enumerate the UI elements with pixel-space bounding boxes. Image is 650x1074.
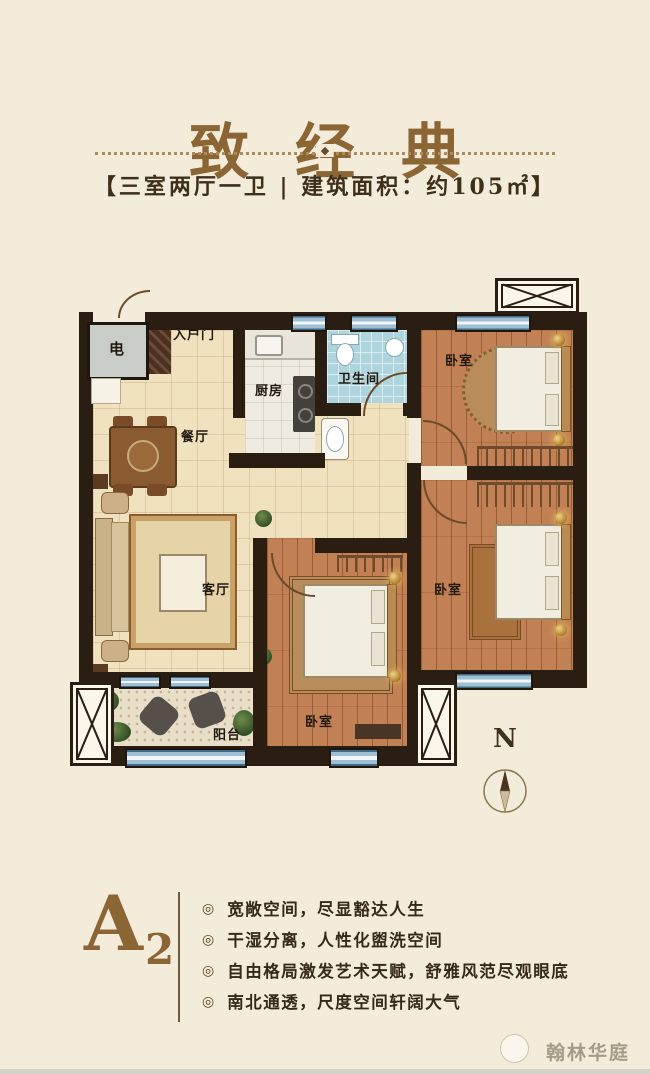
coffee-table xyxy=(159,554,207,612)
feature-list: ◎ 宽敞空间，尽显豁达人生 ◎ 干湿分离，人性化盥洗空间 ◎ 自由格局激发艺术天… xyxy=(202,897,569,1021)
feature-item: ◎ 南北通透，尺度空间轩阔大气 xyxy=(202,990,569,1012)
armchair xyxy=(101,640,129,662)
compass-icon xyxy=(479,762,531,820)
vertical-divider xyxy=(178,892,180,1022)
nightstand-lamp-icon xyxy=(389,572,401,584)
armchair xyxy=(101,492,129,514)
bullet-icon: ◎ xyxy=(202,962,214,979)
room-label-kitchen: 厨房 xyxy=(255,380,283,399)
pillow xyxy=(371,590,385,624)
air-shaft-icon xyxy=(415,682,457,766)
pillow xyxy=(545,352,559,384)
dining-chair xyxy=(147,484,167,496)
room-label-entry: 入户门 xyxy=(173,324,215,343)
bottom-border xyxy=(0,1069,650,1074)
nightstand-lamp-icon xyxy=(555,624,567,636)
bath-sink-icon xyxy=(385,338,404,357)
room-label-living: 客厅 xyxy=(202,579,230,598)
window xyxy=(455,672,533,690)
nightstand-lamp-icon xyxy=(553,434,565,446)
bullet-icon: ◎ xyxy=(202,900,214,917)
divider-ornament-icon: ◆ xyxy=(316,144,334,157)
balcony-slider-window xyxy=(169,675,211,689)
dresser xyxy=(355,724,401,739)
room-label-bedroom-bottom: 卧室 xyxy=(305,711,333,730)
wall xyxy=(315,403,361,416)
window xyxy=(125,748,247,768)
watermark-text: 翰林华庭 xyxy=(546,1038,630,1065)
room-label-dining: 餐厅 xyxy=(181,426,209,445)
feature-item: ◎ 干湿分离，人性化盥洗空间 xyxy=(202,928,569,950)
window xyxy=(455,314,531,332)
pillow xyxy=(371,632,385,666)
wardrobe xyxy=(337,555,403,572)
bed-headboard xyxy=(561,524,571,620)
wardrobe xyxy=(477,446,573,467)
nightstand-lamp-icon xyxy=(389,670,401,682)
plant-icon xyxy=(255,510,272,527)
wardrobe xyxy=(477,482,573,507)
feature-text: 宽敞空间，尽显豁达人生 xyxy=(227,896,425,920)
bed-headboard xyxy=(561,346,571,432)
watermark-logo-icon xyxy=(500,1034,529,1063)
wall xyxy=(407,330,421,418)
floor-plan: 电 入户门 厨房 卫生间 卧室 xyxy=(57,276,597,841)
toilet-icon xyxy=(336,343,354,366)
unit-label: A2 xyxy=(84,886,172,962)
unit-number: 2 xyxy=(145,925,174,974)
north-label: N xyxy=(483,724,527,754)
entry-door-arc xyxy=(118,290,150,318)
bed-headboard xyxy=(387,584,397,678)
side-table xyxy=(93,474,108,489)
room-label-bedroom-right: 卧室 xyxy=(434,579,462,598)
stove-burner xyxy=(298,408,313,423)
window xyxy=(291,314,327,332)
window xyxy=(329,748,379,768)
air-shaft-icon xyxy=(70,682,114,766)
balcony-slider-window xyxy=(119,675,161,689)
unit-letter: A xyxy=(84,879,143,968)
floorplan-poster: 致经典 ◆ 【三室两厅一卫 | 建筑面积：约105㎡】 xyxy=(0,0,650,1074)
sofa-seat xyxy=(111,522,129,632)
pillow xyxy=(545,394,559,426)
wall xyxy=(315,538,409,553)
room-label-bedroom-top: 卧室 xyxy=(445,350,473,369)
vanity-basin-icon xyxy=(326,426,344,452)
feature-item: ◎ 宽敞空间，尽显豁达人生 xyxy=(202,897,569,919)
window xyxy=(350,314,398,332)
bullet-icon: ◎ xyxy=(202,931,214,948)
shoe-cabinet xyxy=(91,378,121,404)
feature-text: 自由格局激发艺术天赋，舒雅风范尽观眼底 xyxy=(227,958,569,982)
air-shaft-icon xyxy=(495,278,579,314)
pillow xyxy=(545,532,559,566)
wall xyxy=(233,330,245,418)
room-label-electric: 电 xyxy=(109,338,125,359)
subtitle: 【三室两厅一卫 | 建筑面积：约105㎡】 xyxy=(0,169,650,201)
room-label-bathroom: 卫生间 xyxy=(338,368,380,387)
wall xyxy=(573,312,587,688)
dining-table-decor xyxy=(127,440,159,472)
pillow xyxy=(545,576,559,610)
stove-burner xyxy=(298,384,313,399)
nightstand-lamp-icon xyxy=(553,334,565,346)
kitchen-sink-icon xyxy=(255,335,283,356)
feature-item: ◎ 自由格局激发艺术天赋，舒雅风范尽观眼底 xyxy=(202,959,569,981)
feature-text: 南北通透，尺度空间轩阔大气 xyxy=(227,989,461,1013)
room-label-balcony: 阳台 xyxy=(213,724,241,743)
wall xyxy=(229,453,325,468)
feature-text: 干湿分离，人性化盥洗空间 xyxy=(227,927,443,951)
nightstand-lamp-icon xyxy=(555,512,567,524)
wall xyxy=(253,538,267,746)
wall xyxy=(467,466,573,480)
bullet-icon: ◎ xyxy=(202,993,214,1010)
